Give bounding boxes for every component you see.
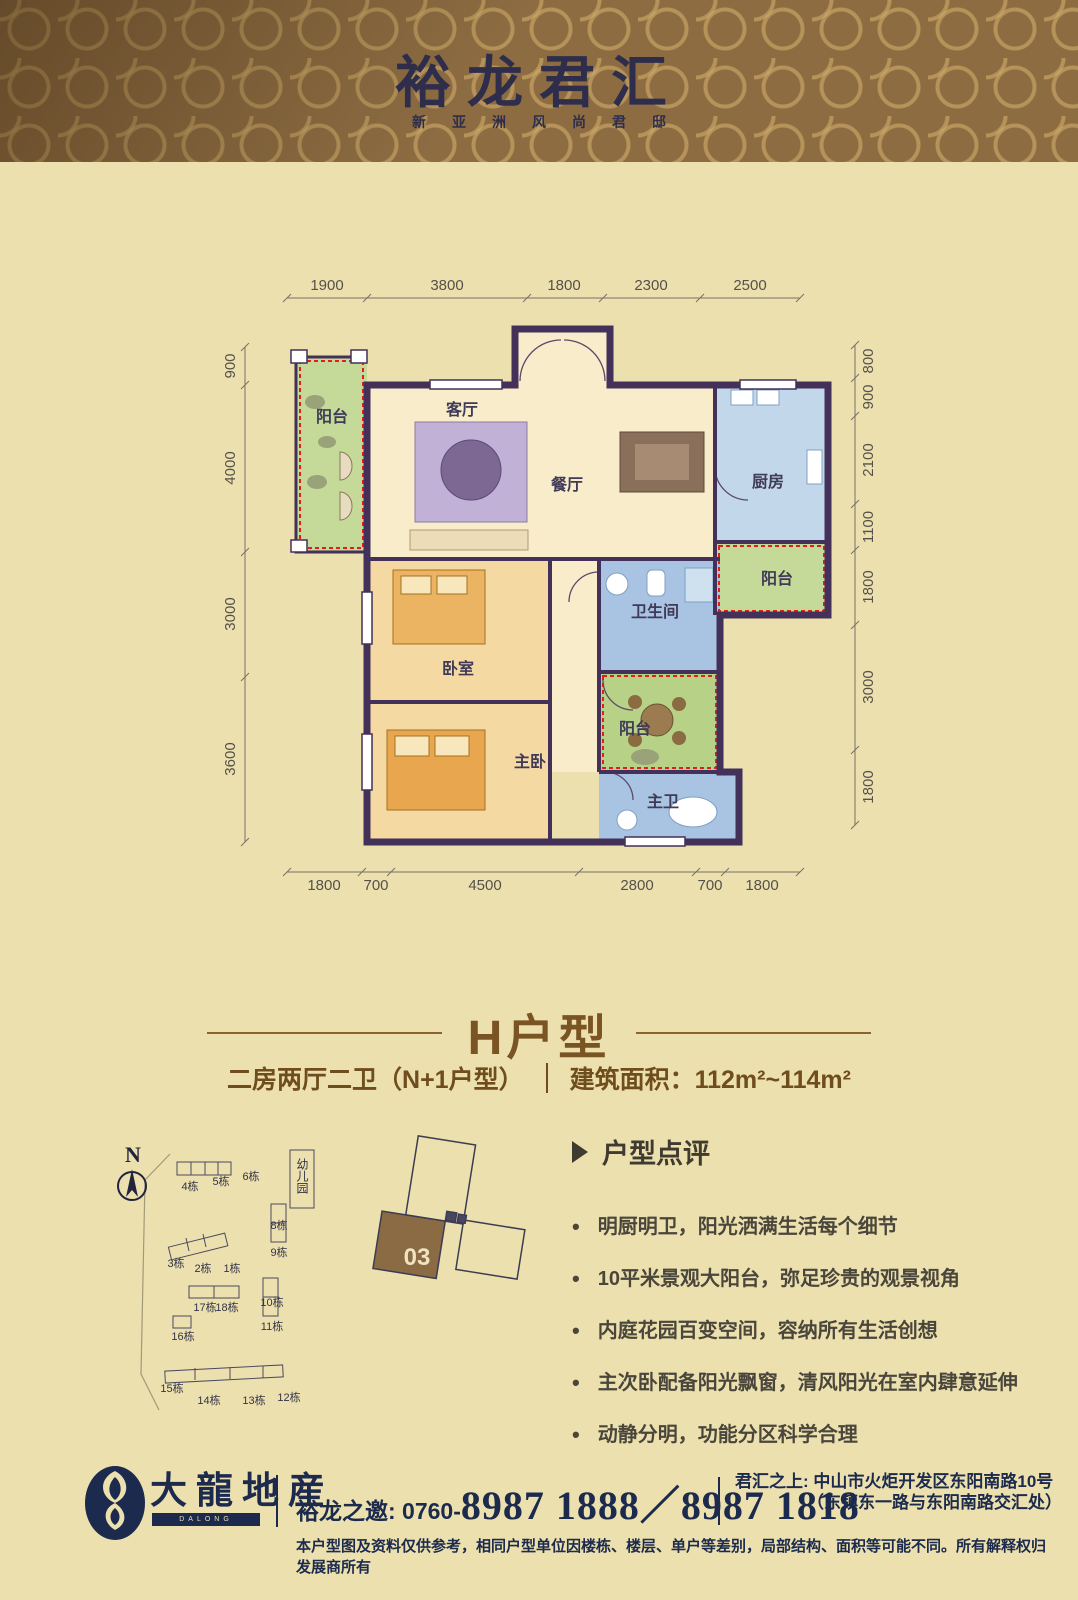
label-living: 客厅 — [446, 400, 478, 419]
bldg-11: 11栋 — [261, 1319, 283, 1333]
dim-right-3: 2100 — [860, 443, 877, 476]
list-item: •动静分明，功能分区科学合理 — [572, 1409, 1042, 1461]
floorplan-drawing: 1900 3800 1800 2300 2500 900 4000 3000 3… — [215, 272, 885, 897]
project-subtitle: 新亚洲风尚君邸 — [0, 112, 1078, 132]
dalong-logo-en: DALONG TENEMENT — [152, 1513, 260, 1526]
bldg-4: 4栋 — [181, 1179, 198, 1193]
list-item: •内庭花园百变空间，容纳所有生活创想 — [572, 1305, 1042, 1357]
keyplan: 03 — [355, 1125, 535, 1295]
label-balcony-kitchen: 阳台 — [761, 569, 793, 588]
compass-icon — [118, 1169, 146, 1200]
dim-right-2: 900 — [860, 384, 877, 409]
title-line-right — [636, 1032, 871, 1034]
dim-bottom-2: 700 — [363, 877, 388, 894]
comments-heading: 户型点评 — [602, 1132, 710, 1171]
footer: 大龍地産 DALONG TENEMENT 裕龙之邀: 0760-8987 188… — [0, 1455, 1078, 1575]
label-bedroom: 卧室 — [442, 659, 474, 678]
keyplan-unit-upper — [406, 1136, 476, 1224]
dim-bottom-6: 1800 — [745, 877, 778, 894]
footer-divider-1 — [276, 1475, 278, 1527]
phone-label: 裕龙之邀: 0760- — [296, 1498, 461, 1524]
bldg-17: 17栋 — [193, 1300, 216, 1314]
disclaimer-text: 本户型图及资料仅供参考，相同户型单位因楼栋、楼层、单户等差别，局部结构、面积等可… — [296, 1535, 1056, 1577]
label-dining: 餐厅 — [550, 475, 583, 494]
room-balcony-left — [296, 357, 367, 552]
comment-text: 明厨明卫，阳光洒满生活每个细节 — [598, 1201, 898, 1253]
address-label: 君汇之上: — [735, 1472, 813, 1491]
dim-left-4: 3600 — [222, 742, 239, 775]
bullet-icon: • — [572, 1201, 580, 1253]
header-banner: 裕龙君汇 新亚洲风尚君邸 — [0, 0, 1078, 162]
bldg-18: 18栋 — [215, 1300, 238, 1314]
comment-text: 10平米景观大阳台，弥足珍贵的观景视角 — [598, 1253, 960, 1305]
label-master-bedroom: 主卧 — [514, 752, 546, 771]
dim-bottom-5: 700 — [697, 877, 722, 894]
dim-top-4: 2300 — [634, 277, 667, 294]
bldg-13: 13栋 — [242, 1393, 265, 1407]
kindergarten-label: 幼儿园 — [295, 1158, 309, 1195]
project-title: 裕龙君汇 — [0, 38, 1078, 119]
bullet-icon: • — [572, 1357, 580, 1409]
dim-top-3: 1800 — [547, 277, 580, 294]
dim-left-3: 3000 — [222, 597, 239, 630]
poster-page: 裕龙君汇 新亚洲风尚君邸 1900 3800 1800 2300 2500 90… — [0, 0, 1078, 1600]
room-entry — [515, 329, 610, 385]
bldg-14: 14栋 — [197, 1393, 220, 1407]
comment-text: 内庭花园百变空间，容纳所有生活创想 — [598, 1305, 938, 1357]
bldg-9: 9栋 — [270, 1245, 287, 1259]
unit-area: 建筑面积：112m²~114m² — [570, 1060, 851, 1096]
bullet-icon: • — [572, 1305, 580, 1357]
comment-text: 主次卧配备阳光飘窗，清风阳光在室内肆意延伸 — [598, 1357, 1018, 1409]
dim-bottom-3: 4500 — [468, 877, 501, 894]
room-hallway — [550, 559, 599, 772]
address-line1: 中山市火炬开发区东阳南路10号 — [813, 1472, 1053, 1491]
bullet-icon: • — [572, 1253, 580, 1305]
keyplan-unit-number: 03 — [404, 1244, 431, 1271]
heading-triangle-icon — [572, 1141, 588, 1163]
unit-spec-row: 二房两厅二卫（N+1户型） 建筑面积：112m²~114m² — [0, 1058, 1078, 1096]
dim-left-2: 4000 — [222, 451, 239, 484]
label-master-bath: 主卫 — [647, 792, 679, 811]
bullet-icon: • — [572, 1409, 580, 1461]
siteplan-map: N 幼儿园 4栋 5栋 6栋 3栋 2栋 1栋 8栋 9栋 10栋 11栋 — [85, 1122, 330, 1417]
bldg-8: 8栋 — [270, 1218, 287, 1232]
bldg-6: 6栋 — [242, 1169, 259, 1183]
spec-divider — [546, 1063, 548, 1093]
comments-list: •明厨明卫，阳光洒满生活每个细节 •10平米景观大阳台，弥足珍贵的观景视角 •内… — [572, 1201, 1042, 1461]
dim-right-7: 1800 — [860, 770, 877, 803]
dim-left-1: 900 — [222, 353, 239, 378]
dim-top-1: 1900 — [310, 277, 343, 294]
dim-top-2: 3800 — [430, 277, 463, 294]
dim-bottom-1: 1800 — [307, 877, 340, 894]
dim-right-1: 800 — [860, 348, 877, 373]
label-balcony-left: 阳台 — [316, 407, 348, 426]
unit-spec: 二房两厅二卫（N+1户型） — [227, 1060, 524, 1096]
label-balcony-mid: 阳台 — [619, 719, 651, 738]
compass-n-label: N — [125, 1142, 141, 1167]
keyplan-core-1 — [445, 1211, 456, 1221]
dim-right-6: 3000 — [860, 670, 877, 703]
dalong-logo-icon — [82, 1463, 152, 1543]
bldg-3: 3栋 — [167, 1256, 184, 1270]
list-item: •10平米景观大阳台，弥足珍贵的观景视角 — [572, 1253, 1042, 1305]
list-item: •明厨明卫，阳光洒满生活每个细节 — [572, 1201, 1042, 1253]
label-kitchen: 厨房 — [752, 472, 784, 491]
bldg-16: 16栋 — [171, 1329, 194, 1343]
bldg-12: 12栋 — [277, 1390, 300, 1404]
comment-text: 动静分明，功能分区科学合理 — [598, 1409, 858, 1461]
title-line-left — [207, 1032, 442, 1034]
footer-divider-2 — [718, 1477, 720, 1525]
dim-top-5: 2500 — [733, 277, 766, 294]
label-bathroom: 卫生间 — [631, 602, 679, 621]
dim-right-5: 1800 — [860, 570, 877, 603]
bldg-1: 1栋 — [223, 1261, 240, 1275]
list-item: •主次卧配备阳光飘窗，清风阳光在室内肆意延伸 — [572, 1357, 1042, 1409]
room-fills — [296, 329, 828, 842]
address-line2: （东镇东一路与东阳南路交汇处） — [735, 1492, 1062, 1513]
dim-bottom-4: 2800 — [620, 877, 653, 894]
bldg-10: 10栋 — [260, 1295, 283, 1309]
bldg-2: 2栋 — [194, 1261, 211, 1275]
comments-block: 户型点评 •明厨明卫，阳光洒满生活每个细节 •10平米景观大阳台，弥足珍贵的观景… — [572, 1132, 1042, 1461]
keyplan-unit-right — [456, 1220, 525, 1279]
bldg-15: 15栋 — [160, 1381, 183, 1395]
dim-right-4: 1100 — [860, 511, 877, 543]
keyplan-core-2 — [457, 1214, 466, 1223]
address-block: 君汇之上: 中山市火炬开发区东阳南路10号 （东镇东一路与东阳南路交汇处） — [735, 1471, 1062, 1513]
bldg-5: 5栋 — [212, 1174, 229, 1188]
